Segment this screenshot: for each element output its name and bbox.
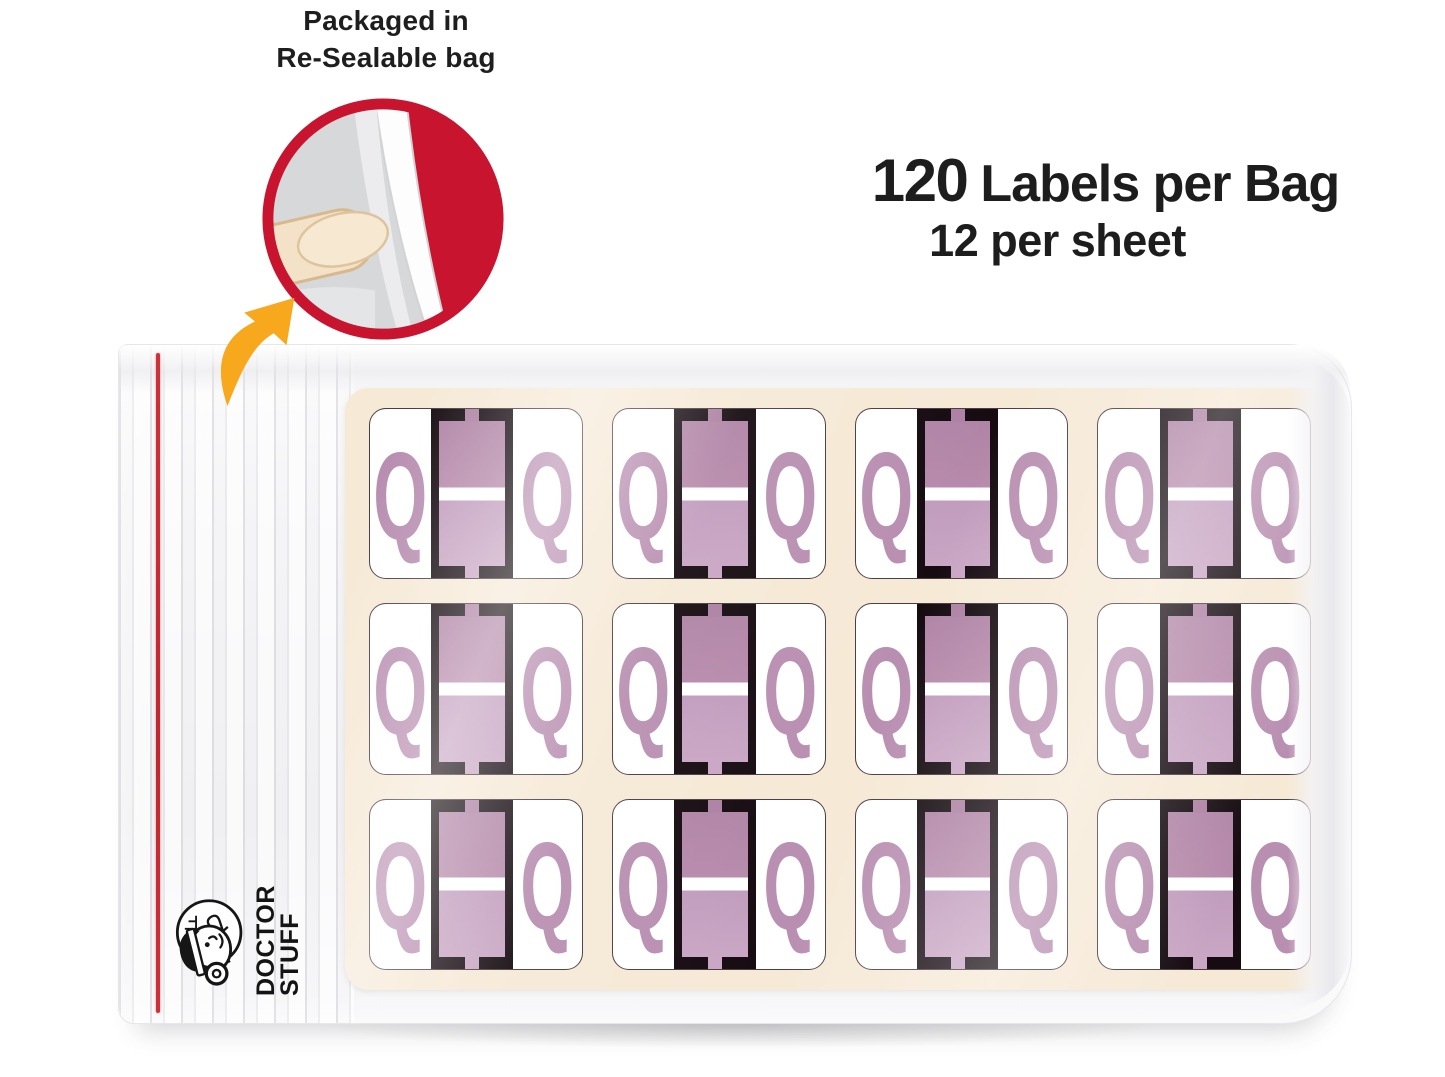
label-color-bar [431,604,513,773]
label-sheet: Q Q Q Q [345,388,1335,990]
headline-line2: 12 per sheet [800,216,1315,266]
color-bar-top-tab [1193,800,1207,813]
file-label: Q Q [369,408,583,579]
color-bar-bottom-tab [1193,761,1207,774]
label-letter-right: Q [756,409,825,578]
color-bar-divider [439,487,505,500]
labels-per-bag-count: 120 [872,147,968,214]
label-color-bar [917,604,999,773]
label-letter-right: Q [1241,800,1310,969]
color-bar-bottom-tab [708,761,722,774]
color-bar-top-tab [951,409,965,422]
logo-text: DOCTOR STUFF [254,870,302,1010]
color-bar-top-tab [708,604,722,617]
color-bar-divider [925,878,991,891]
label-color-bar [917,409,999,578]
file-label: Q Q [1097,408,1311,579]
file-label: Q Q [612,408,826,579]
label-letter-right: Q [998,409,1067,578]
color-bar-bottom-tab [465,565,479,578]
color-bar-bottom-tab [1193,956,1207,969]
label-letter-left: Q [370,409,431,578]
file-label: Q Q [855,408,1069,579]
label-letter-left: Q [613,604,674,773]
file-label: Q Q [369,603,583,774]
label-letter-right: Q [513,409,582,578]
color-bar-bottom-tab [708,956,722,969]
labels-per-bag-text: Labels per Bag [980,155,1339,213]
label-letter-left: Q [613,409,674,578]
label-letter-right: Q [513,800,582,969]
label-letter-left: Q [370,604,431,773]
color-bar-top-tab [708,409,722,422]
file-label: Q Q [369,799,583,970]
color-bar-top-tab [465,409,479,422]
label-letter-right: Q [1241,409,1310,578]
color-bar-divider [682,878,748,891]
label-letter-right: Q [756,604,825,773]
label-letter-left: Q [370,800,431,969]
color-bar-bottom-tab [951,761,965,774]
file-label: Q Q [612,799,826,970]
file-label: Q Q [612,603,826,774]
color-bar-bottom-tab [465,956,479,969]
label-letter-left: Q [856,604,917,773]
bag-seal-red-line [156,353,160,1013]
label-letter-left: Q [613,800,674,969]
logo-text-line1: DOCTOR [254,870,278,996]
color-bar-divider [925,682,991,695]
color-bar-divider [439,682,505,695]
color-bar-top-tab [465,604,479,617]
color-bar-bottom-tab [708,565,722,578]
label-letter-left: Q [1098,604,1159,773]
color-bar-divider [1168,487,1234,500]
color-bar-bottom-tab [1193,565,1207,578]
label-letter-right: Q [1241,604,1310,773]
label-letter-right: Q [756,800,825,969]
curved-arrow-icon [198,291,316,409]
color-bar-top-tab [951,604,965,617]
label-color-bar [674,604,756,773]
color-bar-top-tab [951,800,965,813]
color-bar-divider [1168,878,1234,891]
label-color-bar [674,409,756,578]
label-color-bar [1160,604,1242,773]
label-letter-right: Q [998,604,1067,773]
packaged-caption: Packaged in Re-Sealable bag [232,2,540,76]
color-bar-bottom-tab [465,761,479,774]
color-bar-divider [1168,682,1234,695]
label-color-bar [674,800,756,969]
label-letter-right: Q [998,800,1067,969]
file-label: Q Q [1097,603,1311,774]
doctor-character-icon [168,892,254,988]
color-bar-bottom-tab [951,956,965,969]
label-letter-left: Q [856,409,917,578]
file-label: Q Q [855,799,1069,970]
color-bar-bottom-tab [951,565,965,578]
file-label: Q Q [855,603,1069,774]
packaged-caption-line1: Packaged in [232,2,540,39]
doctor-stuff-logo: DOCTOR STUFF [168,870,318,1010]
color-bar-top-tab [1193,604,1207,617]
label-letter-left: Q [856,800,917,969]
product-image: Packaged in Re-Sealable bag 120Labels pe… [0,0,1445,1077]
headline-line1: 120Labels per Bag [848,152,1363,213]
color-bar-divider [439,878,505,891]
headline: 120Labels per Bag 12 per sheet [848,152,1363,266]
color-bar-top-tab [465,800,479,813]
label-color-bar [1160,800,1242,969]
label-color-bar [431,409,513,578]
label-letter-left: Q [1098,409,1159,578]
color-bar-top-tab [708,800,722,813]
color-bar-divider [682,682,748,695]
color-bar-top-tab [1193,409,1207,422]
label-color-bar [917,800,999,969]
color-bar-divider [682,487,748,500]
packaged-caption-line2: Re-Sealable bag [232,39,540,76]
label-letter-right: Q [513,604,582,773]
label-color-bar [1160,409,1242,578]
file-label: Q Q [1097,799,1311,970]
label-letter-left: Q [1098,800,1159,969]
label-color-bar [431,800,513,969]
logo-text-line2: STUFF [278,870,302,996]
color-bar-divider [925,487,991,500]
